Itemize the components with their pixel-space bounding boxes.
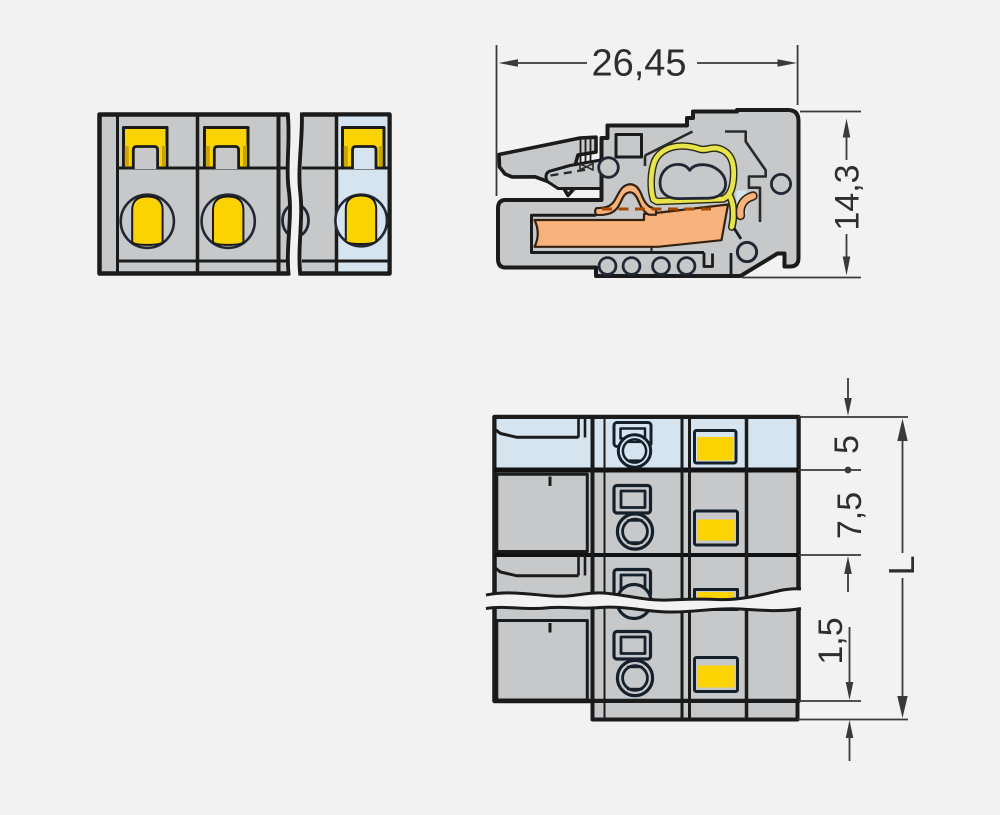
svg-text:7,5: 7,5 [831, 492, 869, 539]
svg-text:1,5: 1,5 [812, 617, 850, 664]
svg-text:14,3: 14,3 [829, 164, 867, 230]
svg-text:L: L [881, 555, 922, 575]
svg-text:26,45: 26,45 [591, 43, 686, 85]
svg-text:5: 5 [828, 435, 866, 454]
